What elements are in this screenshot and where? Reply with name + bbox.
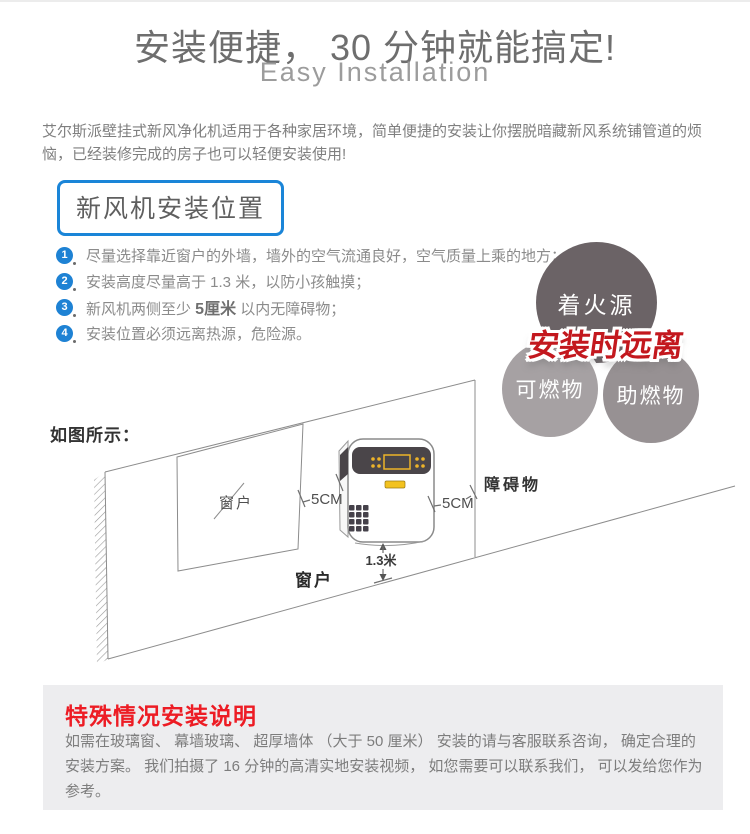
intro-paragraph: 艾尔斯派壁挂式新风净化机适用于各种家居环境，简单便捷的安装让你摆脱暗藏新风系统铺… [42, 120, 718, 166]
circle-label: 助燃物 [617, 380, 686, 410]
keep-away-warning-text: 安装时远离 [513, 320, 699, 365]
dim-dash [303, 500, 310, 502]
point-text: 安装位置必须远离热源，危险源。 [86, 323, 311, 344]
special-instructions-body: 如需在玻璃窗、 幕墙玻璃、 超厚墙体 （大于 50 厘米） 安装的请与客服联系咨… [65, 729, 705, 804]
product-installation-page: 安装便捷， 30 分钟就能搞定! Easy Installation 艾尔斯派壁… [0, 0, 750, 834]
number-badge: 1 [56, 247, 73, 264]
purifier-device [339, 439, 434, 546]
list-item: 1 尽量选择靠近窗户的外墙，墙外的空气流通良好，空气质量上乘的地方； [56, 242, 536, 268]
number-badge: 3 [56, 299, 73, 316]
special-instructions-panel: 特殊情况安装说明 如需在玻璃窗、 幕墙玻璃、 超厚墙体 （大于 50 厘米） 安… [43, 685, 723, 810]
point-text-pre: 安装高度尽量高于 1.3 米，以防小孩触摸； [86, 274, 370, 291]
install-points-list: 1 尽量选择靠近窗户的外墙，墙外的空气流通良好，空气质量上乘的地方； 2 安装高… [56, 242, 536, 346]
point-text-pre: 安装位置必须远离热源，危险源。 [86, 326, 311, 343]
top-divider [0, 0, 750, 2]
page-subtitle: Easy Installation [0, 57, 750, 88]
height-label: 1.3米 [365, 553, 397, 568]
point-text: 尽量选择靠近窗户的外墙，墙外的空气流通良好，空气质量上乘的地方； [86, 245, 566, 266]
point-text-post: 以内无障碍物； [236, 301, 345, 318]
window-inner-label: 窗户 [219, 494, 253, 512]
point-text-pre: 尽量选择靠近窗户的外墙，墙外的空气流通良好，空气质量上乘的地方； [86, 248, 566, 265]
dim-dash [434, 505, 441, 506]
point-text-pre: 新风机两侧至少 [86, 301, 195, 318]
circle-label: 可燃物 [516, 374, 585, 404]
point-text: 安装高度尽量高于 1.3 米，以防小孩触摸； [86, 271, 370, 292]
obstacle-label: 障碍物 [484, 475, 541, 494]
list-item: 2 安装高度尽量高于 1.3 米，以防小孩触摸； [56, 268, 536, 294]
number-badge: 2 [56, 273, 73, 290]
device-logo-badge [385, 481, 405, 488]
point-text-bold: 5厘米 [195, 301, 236, 318]
gap-left-label: 5CM [311, 491, 343, 508]
circle-label: 着火源 [558, 286, 636, 320]
dim-tick [298, 490, 305, 507]
section-heading-box: 新风机安装位置 [57, 180, 284, 236]
point-text: 新风机两侧至少 5厘米 以内无障碍物； [86, 295, 345, 319]
number-badge: 4 [56, 325, 73, 342]
window-bottom-label: 窗户 [295, 570, 333, 590]
list-item: 4 安装位置必须远离热源，危险源。 [56, 320, 536, 346]
device-top-band [352, 447, 431, 474]
list-item: 3 新风机两侧至少 5厘米 以内无障碍物； [56, 294, 536, 320]
special-instructions-title: 特殊情况安装说明 [65, 697, 257, 731]
